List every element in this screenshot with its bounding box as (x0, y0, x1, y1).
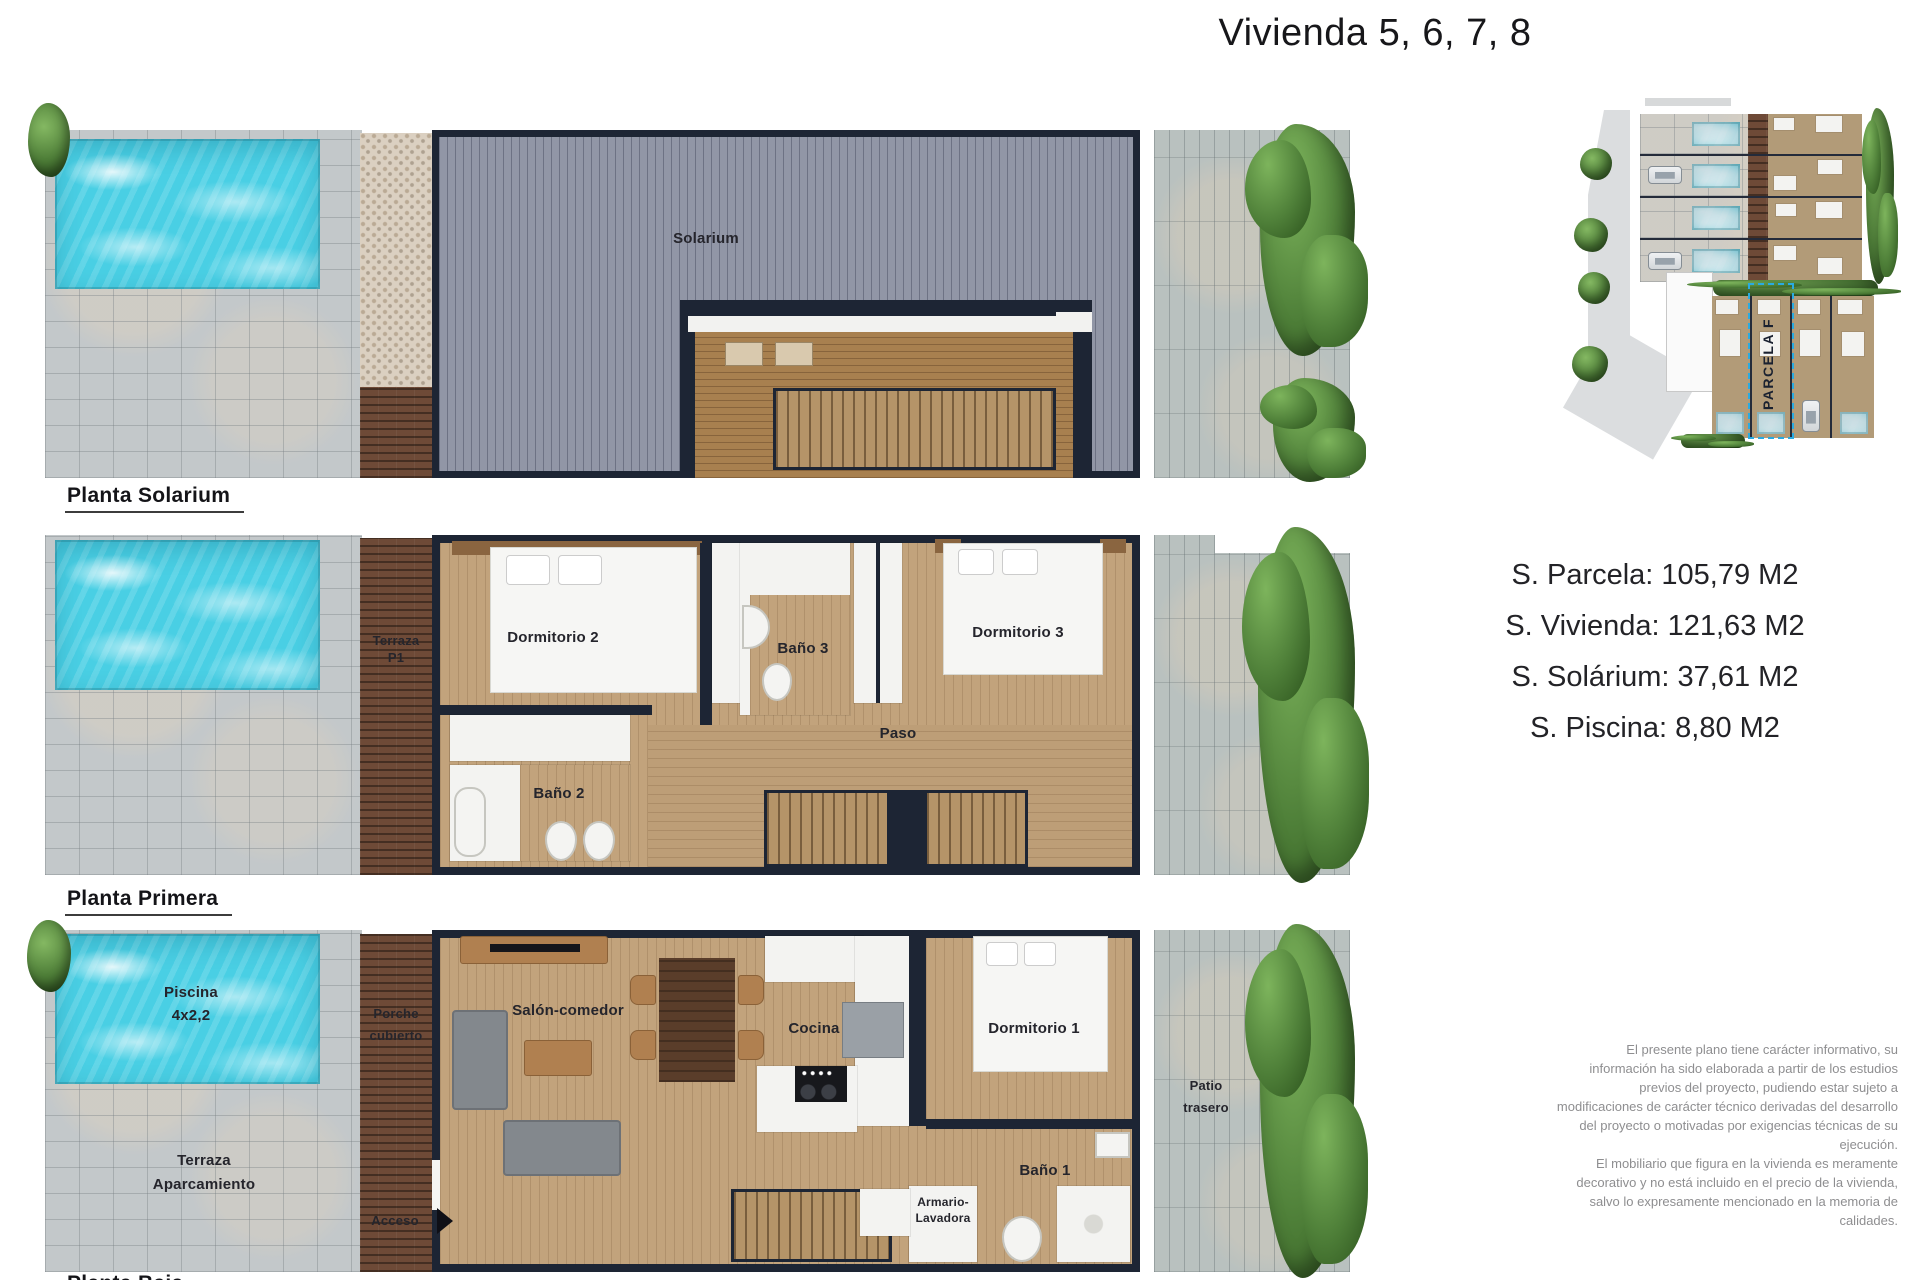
unit-row (1640, 114, 1862, 154)
deck-edge (688, 316, 1080, 332)
unit-col (1832, 296, 1874, 438)
disclaimer-paragraph-2: El mobiliario que figura en la vivienda … (1556, 1154, 1898, 1230)
car (1648, 166, 1682, 184)
measurement-solarium: S. Solárium: 37,61 M2 (1438, 652, 1872, 703)
area-measurements: S. Parcela: 105,79 M2 S. Vivienda: 121,6… (1438, 550, 1872, 754)
porche-line1: Porche (358, 1005, 434, 1022)
interior-wall (926, 1119, 1132, 1129)
access-arrow-icon (437, 1208, 453, 1234)
page-title: Vivienda 5, 6, 7, 8 (1160, 12, 1590, 55)
coffee-table (524, 1040, 592, 1076)
room-label-dormitorio1: Dormitorio 1 (954, 1020, 1114, 1038)
site-pool (1692, 164, 1740, 188)
site-room (1842, 332, 1864, 356)
site-room (1716, 300, 1738, 314)
dining-table (659, 958, 735, 1082)
gap (1140, 535, 1154, 875)
room-label-acceso: Acceso (355, 1212, 435, 1229)
site-room (1720, 330, 1740, 356)
pool (55, 139, 320, 289)
terraza-line2: P1 (360, 649, 432, 666)
plan-label-baja: Planta Baja (65, 1272, 198, 1280)
site-pool (1692, 206, 1740, 230)
hedge (1260, 124, 1355, 356)
measurement-piscina: S. Piscina: 8,80 M2 (1438, 703, 1872, 754)
pillow (506, 555, 550, 585)
room-label-dormitorio2: Dormitorio 2 (473, 629, 633, 647)
piscina-line2: 4x2,2 (111, 1007, 271, 1025)
upper-units (1640, 114, 1862, 282)
kitchen-counter (765, 936, 863, 982)
pool (55, 540, 320, 690)
patio-line2: trasero (1146, 1099, 1266, 1116)
terraza-line2: Aparcamiento (104, 1176, 304, 1194)
closet (880, 543, 902, 703)
site-deck (1748, 198, 1768, 238)
room-label-solarium: Solarium (626, 230, 786, 248)
hedge (1260, 924, 1355, 1278)
lounger (775, 342, 813, 366)
deck-notch (1056, 312, 1092, 332)
room-label-bano3: Baño 3 (723, 640, 883, 658)
pillow (1002, 549, 1038, 575)
site-deck (1748, 114, 1768, 154)
sidewalk (1645, 98, 1731, 106)
room-label-piscina: Piscina 4x2,2 (111, 984, 271, 1025)
chair (630, 975, 656, 1005)
room-label-porche: Porche cubierto (358, 1005, 434, 1044)
garage (1667, 273, 1712, 391)
room-label-dormitorio3: Dormitorio 3 (938, 624, 1098, 642)
car (1802, 400, 1820, 432)
disclaimer: El presente plano tiene carácter informa… (1556, 1040, 1898, 1230)
house-floor-baja: Salón-comedor Cocina Dormitorio 1 Baño 1 (432, 930, 1140, 1272)
site-room (1818, 160, 1842, 174)
wood-deck-strip (360, 387, 432, 478)
terraza-line1: Terraza (360, 632, 432, 649)
closet (854, 543, 876, 703)
tree (1572, 346, 1608, 382)
room-label-bano1: Baño 1 (965, 1162, 1125, 1180)
site-pool (1692, 249, 1740, 273)
hedge (1681, 434, 1745, 448)
tree (1578, 272, 1610, 304)
piscina-line1: Piscina (111, 984, 271, 1002)
lounger (725, 342, 763, 366)
plan-label-solarium: Planta Solarium (65, 484, 244, 513)
measurement-vivienda: S. Vivienda: 121,63 M2 (1438, 601, 1872, 652)
site-deck (1748, 240, 1768, 282)
room-label-patio: Patio trasero (1146, 1077, 1266, 1116)
unit-row (1640, 156, 1862, 196)
sink (1095, 1132, 1130, 1158)
armario-line1: Armario- (903, 1194, 983, 1210)
car (1648, 252, 1682, 270)
site-room (1774, 176, 1796, 190)
hedge (1258, 527, 1355, 883)
chair (630, 1030, 656, 1060)
unit-col (1712, 296, 1750, 438)
plan-primera: Terraza P1 Dormitorio 2 Baño 2 (45, 535, 1350, 875)
tree (1580, 148, 1612, 180)
site-pool (1840, 412, 1868, 434)
stairs (924, 790, 1028, 867)
pillow (986, 942, 1018, 966)
sofa (503, 1120, 621, 1176)
hedge (1273, 378, 1355, 482)
room-label-terraza-p1: Terraza P1 (360, 632, 432, 666)
site-room (1798, 300, 1820, 314)
site-room (1774, 246, 1796, 260)
closet (450, 715, 630, 761)
armario-line2: Lavadora (903, 1210, 983, 1226)
tree (28, 103, 70, 177)
room-label-salon: Salón-comedor (488, 1002, 648, 1020)
plan-label-primera: Planta Primera (65, 887, 232, 916)
room-label-bano2: Baño 2 (479, 785, 639, 803)
measurement-parcela: S. Parcela: 105,79 M2 (1438, 550, 1872, 601)
unit-row (1640, 198, 1862, 238)
site-room (1816, 116, 1842, 132)
plan-baja: Piscina 4x2,2 Terraza Aparcamiento Porch… (45, 930, 1350, 1272)
site-plan: PARCELA F (1588, 96, 1916, 448)
site-pool (1692, 122, 1740, 146)
sofa (452, 1010, 508, 1110)
site-room (1818, 258, 1842, 274)
stair-divider (890, 790, 924, 867)
shower (1057, 1186, 1130, 1262)
terraza-p1 (360, 538, 432, 875)
closet (712, 543, 740, 703)
gap (1140, 130, 1154, 478)
cooktop (795, 1066, 847, 1102)
pillow (558, 555, 602, 585)
site-room (1838, 300, 1862, 314)
parcela-f-label: PARCELA F (1760, 299, 1780, 429)
unit-col (1792, 296, 1830, 438)
solarium-deck (432, 130, 1140, 478)
disclaimer-paragraph-1: El presente plano tiene carácter informa… (1556, 1040, 1898, 1154)
site-deck (1748, 156, 1768, 196)
room-label-paso: Paso (818, 725, 978, 743)
page: Solarium Planta Solarium Terraza P1 Dorm… (0, 0, 1920, 1280)
site-room (1774, 118, 1794, 130)
room-label-cocina: Cocina (734, 1020, 894, 1038)
pillow (958, 549, 994, 575)
hedge (1713, 280, 1878, 296)
site-room (1776, 204, 1796, 216)
tv (490, 944, 580, 952)
tree (27, 920, 71, 992)
tree (1574, 218, 1608, 252)
site-room (1816, 202, 1842, 218)
plan-solarium: Solarium (45, 130, 1350, 478)
room-label-terraza-aparcamiento: Terraza Aparcamiento (104, 1152, 304, 1194)
interior-wall (909, 936, 926, 1126)
entrance-door-gap (432, 1160, 440, 1210)
terraza-line1: Terraza (104, 1152, 304, 1170)
pillow (1024, 942, 1056, 966)
porche-line2: cubierto (358, 1027, 434, 1044)
interior-wall (440, 705, 652, 715)
gravel-strip (360, 133, 432, 387)
site-room (1800, 330, 1820, 356)
stairs (764, 790, 890, 867)
hedge (1866, 108, 1894, 284)
chair (738, 975, 764, 1005)
site-pool (1716, 412, 1744, 434)
patio-line1: Patio (1146, 1077, 1266, 1094)
room-label-armario: Armario- Lavadora (903, 1194, 983, 1226)
stairs (773, 388, 1056, 470)
headboard (1100, 539, 1126, 553)
house-floor-primera: Dormitorio 2 Baño 2 Baño 3 (432, 535, 1140, 875)
